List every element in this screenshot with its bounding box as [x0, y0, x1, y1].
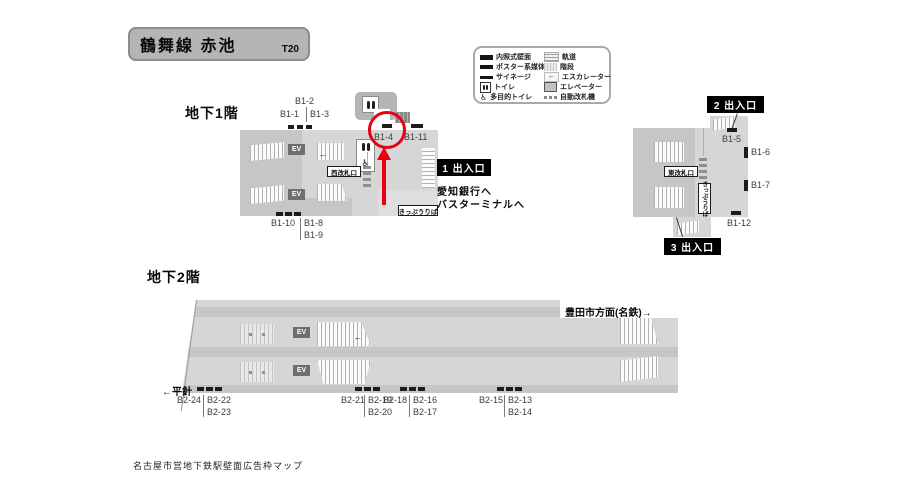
position-label-b2-17: B2-17	[413, 407, 437, 417]
ad-position-bar-b1-11	[411, 124, 423, 128]
escalator-icon	[317, 322, 371, 346]
ad-position-bar-b1-6	[744, 147, 748, 158]
ad-position-bar-b1-10	[276, 212, 283, 216]
ad-position-bar-b2	[497, 387, 504, 391]
legend-item: ←エスカレーター	[544, 72, 608, 82]
elevator-icon: EV	[288, 144, 305, 155]
ad-position-bar-b2	[418, 387, 425, 391]
legend-item: 階段	[544, 62, 608, 72]
label-connector-line	[300, 218, 301, 240]
track-icon	[544, 52, 559, 62]
legend-item: トイレ	[480, 82, 544, 92]
ticket-office-label-east: きっぷうりば	[698, 183, 711, 214]
position-label-b1-3: B1-3	[310, 109, 329, 119]
label-connector-line	[203, 395, 204, 417]
ad-position-bar-b2	[373, 387, 380, 391]
label-connector-line	[364, 395, 365, 417]
ad-position-bar-b2	[400, 387, 407, 391]
ad-position-bar-b2	[364, 387, 371, 391]
elevator-icon: EV	[293, 327, 310, 338]
position-label-b1-7: B1-7	[751, 180, 770, 190]
stairs-icon	[620, 356, 658, 382]
position-label-b2-24: B2-24	[177, 395, 201, 405]
west-gate-label: 西改札口	[327, 166, 361, 177]
ad-position-bar-b2	[215, 387, 222, 391]
legend-item: ♿多目的トイレ	[480, 92, 544, 102]
ticket-gate-icon	[699, 170, 707, 173]
elevator-icon: EV	[293, 365, 310, 376]
elevator-icon: EV	[288, 189, 305, 200]
legend-label: エレベーター	[560, 82, 602, 92]
position-label-b1-5: B1-5	[722, 134, 741, 144]
position-label-b2-23: B2-23	[207, 407, 231, 417]
stairs-icon	[654, 142, 684, 162]
station-title-badge: 鶴舞線 赤池 T20	[128, 27, 310, 61]
label-connector-line	[409, 395, 410, 417]
toilet-icon	[362, 143, 370, 151]
position-label-b2-14: B2-14	[508, 407, 532, 417]
ad-position-bar-b1-1	[288, 125, 294, 129]
label-connector-line	[504, 395, 505, 417]
ad-position-bar-b2	[197, 387, 204, 391]
legend-label: トイレ	[494, 82, 515, 92]
ad-position-bar-b1-3	[306, 125, 312, 129]
legend-item: 軌道	[544, 52, 608, 62]
ad-position-bar-b1-12	[731, 211, 741, 215]
escalator-icon: ←	[544, 72, 559, 82]
ticket-gate-icon	[363, 178, 371, 181]
ticket-gate-icon	[363, 172, 371, 175]
legend-label: 階段	[560, 62, 574, 72]
label-connector-line	[306, 107, 307, 122]
lit-wall-panel-icon	[480, 55, 493, 60]
position-label-b2-15: B2-15	[479, 395, 503, 405]
legend-label: 多目的トイレ	[490, 92, 532, 102]
position-label-b2-13: B2-13	[508, 395, 532, 405]
position-label-b1-1: B1-1	[280, 109, 299, 119]
position-label-b1-6: B1-6	[751, 147, 770, 157]
exit-2-label: 2 出入口	[707, 96, 764, 113]
legend-label: 自動改札機	[560, 92, 595, 102]
position-label-b2-22: B2-22	[207, 395, 231, 405]
direction-toyota-label: 豊田市方面(名鉄)→	[565, 304, 652, 319]
position-label-b1-11: B1-11	[404, 132, 427, 142]
b2-floor-heading: 地下2階	[147, 267, 201, 287]
stairs-icon	[422, 148, 435, 188]
exit-1-label: 1 出入口	[437, 159, 491, 176]
legend-item: エレベーター	[544, 82, 608, 92]
highlight-arrow-annotation	[377, 147, 391, 160]
ad-position-bar-b1-5	[727, 128, 737, 132]
track-band	[182, 347, 678, 357]
legend-box: 内照式壁面 ポスター系媒体 サイネージ トイレ ♿多目的トイレ 軌道 階段 ←エ…	[473, 46, 611, 104]
ticket-gate-icon	[363, 166, 371, 169]
signage-icon	[480, 76, 493, 79]
accessible-toilet-icon: ♿	[480, 93, 487, 102]
highlight-circle-annotation	[368, 111, 406, 149]
ticket-gate-icon	[544, 96, 557, 99]
legend-label: 軌道	[562, 52, 576, 62]
line-station-title: 鶴舞線 赤池	[140, 32, 236, 56]
ticket-gate-icon	[699, 158, 707, 161]
position-label-b1-12: B1-12	[727, 218, 751, 228]
toilet-icon	[480, 82, 491, 93]
ad-position-bar-b2	[506, 387, 513, 391]
legend-label: エスカレーター	[562, 72, 611, 82]
escalator-arrow-icon: ←	[319, 151, 327, 159]
position-label-b2-20: B2-20	[368, 407, 392, 417]
ad-position-bar-b1-2	[297, 125, 303, 129]
stairs-icon	[654, 187, 684, 208]
legend-item: ポスター系媒体	[480, 62, 544, 72]
escalator-arrow-icon: ←	[354, 334, 362, 342]
ticket-gate-icon	[699, 176, 707, 179]
stairs-icon	[240, 324, 274, 344]
ticket-gate-icon	[363, 184, 371, 187]
legend-right-column: 軌道 階段 ←エスカレーター エレベーター 自動改札機	[544, 52, 608, 98]
position-label-b2-21: B2-21	[341, 395, 365, 405]
position-label-b1-2: B1-2	[295, 96, 314, 106]
exit-3-label: 3 出入口	[664, 238, 721, 255]
position-label-b1-8: B1-8	[304, 218, 323, 228]
ticket-office-label-west: きっぷうりば	[398, 205, 438, 216]
position-label-b2-18: B2-18	[383, 395, 407, 405]
b1-floor-heading: 地下1階	[185, 103, 239, 123]
ad-position-bar-b2	[355, 387, 362, 391]
ad-position-bar-b1-7	[744, 180, 748, 191]
gate-wall-line	[367, 152, 368, 164]
east-gate-label: 東改札口	[664, 166, 698, 177]
highlight-arrow-shaft	[382, 160, 386, 205]
ad-position-bar-b2	[409, 387, 416, 391]
b1-west-paid-area	[240, 130, 302, 216]
station-wall-ad-map: 鶴舞線 赤池 T20 内照式壁面 ポスター系媒体 サイネージ トイレ ♿多目的ト…	[0, 0, 919, 491]
ad-position-bar-b1-9	[294, 212, 301, 216]
position-label-b2-16: B2-16	[413, 395, 437, 405]
position-label-b1-10: B1-10	[271, 218, 295, 228]
legend-item: 内照式壁面	[480, 52, 544, 62]
ad-position-bar-b2	[515, 387, 522, 391]
stairs-icon	[620, 318, 658, 344]
ad-position-bar-b2	[206, 387, 213, 391]
exit-1-destination-bus: バスターミナルへ	[437, 196, 525, 211]
legend-label: サイネージ	[496, 72, 531, 82]
legend-label: 内照式壁面	[496, 52, 531, 62]
stairs-icon	[544, 63, 557, 71]
map-footer-title: 名古屋市営地下鉄駅壁面広告枠マップ	[133, 459, 303, 472]
ticket-gate-icon	[699, 164, 707, 167]
legend-item: 自動改札機	[544, 92, 608, 102]
ad-position-bar-b1-8	[285, 212, 292, 216]
track-band	[182, 385, 678, 393]
elevator-icon	[544, 82, 557, 92]
legend-label: ポスター系媒体	[496, 62, 545, 72]
station-code: T20	[282, 44, 299, 55]
stairs-icon	[317, 360, 371, 384]
b2-platform-map: 豊田市方面(名鉄)→ EV ← EV	[182, 300, 678, 393]
position-label-b1-9: B1-9	[304, 230, 323, 240]
legend-left-column: 内照式壁面 ポスター系媒体 サイネージ トイレ ♿多目的トイレ	[480, 52, 544, 98]
legend-item: サイネージ	[480, 72, 544, 82]
poster-media-icon	[480, 65, 493, 69]
gate-wall-line	[703, 128, 704, 156]
stairs-icon	[240, 362, 274, 382]
